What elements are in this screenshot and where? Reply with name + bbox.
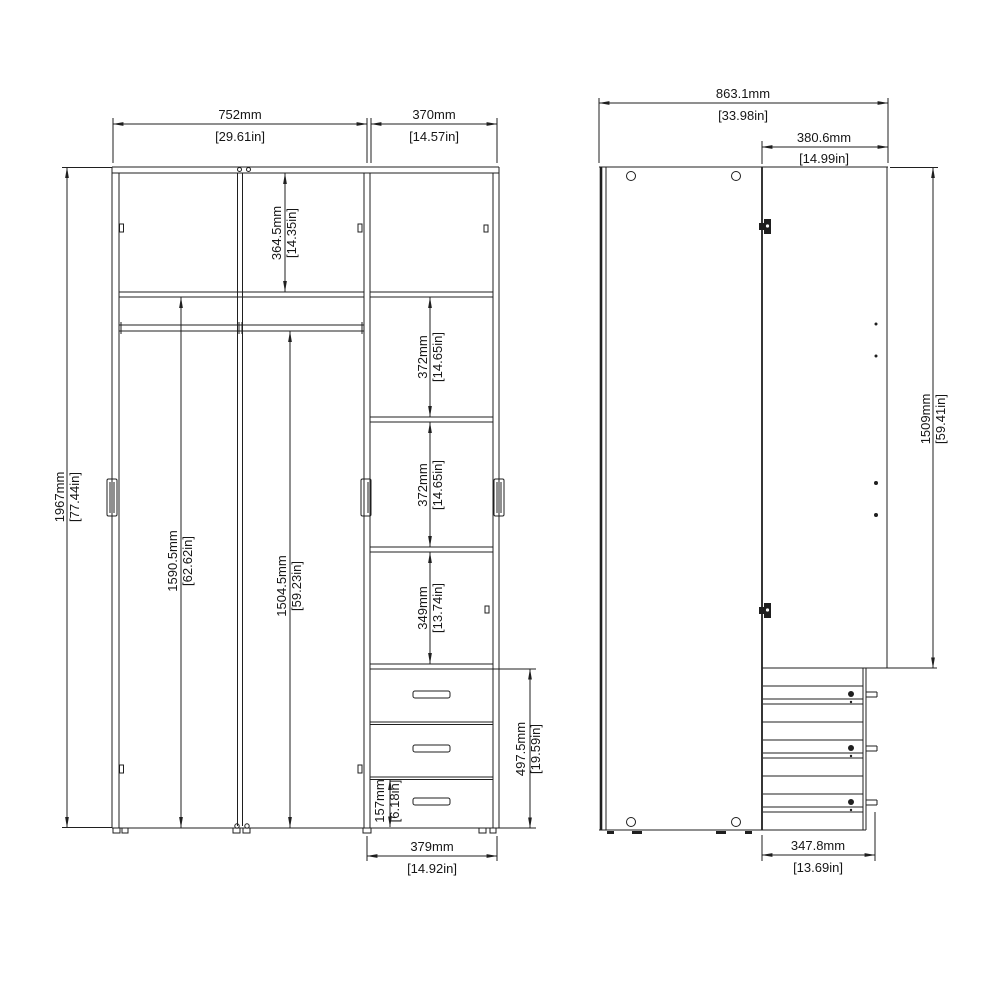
dim-front-width-doors-in: [29.61in] [215, 129, 265, 144]
dim-depth-total-in: [33.98in] [718, 108, 768, 123]
dim-drawer-depth-mm: 347.8mm [791, 838, 845, 853]
dim-shelf2-in: [14.65in] [430, 460, 445, 510]
drawer-handle-2 [413, 745, 450, 752]
screw-hole [732, 818, 741, 827]
hinge-icon [759, 219, 771, 234]
screw-hole [627, 172, 636, 181]
side-drawer-section [762, 668, 937, 830]
dim-drawer-stack-mm: 497.5mm [513, 722, 528, 776]
cam-mark [238, 168, 242, 172]
drawer-side-profile [763, 794, 877, 812]
dim-drawer-depth-in: [13.69in] [793, 860, 843, 875]
dim-side-height-in: [59.41in] [933, 394, 948, 444]
dim-shelf3-mm: 349mm [415, 586, 430, 629]
dim-shelf3-in: [13.74in] [430, 583, 445, 633]
dim-mid-hang-mm: 1504.5mm [274, 555, 289, 616]
dim-shelf1-mm: 372mm [415, 335, 430, 378]
dim-depth-total-mm: 863.1mm [716, 86, 770, 101]
drawer-side-profile [763, 686, 877, 704]
side-view: 863.1mm [33.98in] 380.6mm [14.99in] 1509… [599, 86, 948, 875]
dim-top-section-in: [14.35in] [284, 208, 299, 258]
front-view: 752mm [29.61in] 370mm [14.57in] 1967mm [… [52, 107, 543, 876]
dim-bottom-drawer-in: [6.18in] [387, 780, 402, 823]
front-dimension-labels: 752mm [29.61in] 370mm [14.57in] 1967mm [… [52, 107, 543, 876]
drawer-side-profile [763, 740, 877, 758]
dim-depth-cabinet-mm: 380.6mm [797, 130, 851, 145]
front-drawer-handles [413, 691, 450, 805]
dim-shelf2-mm: 372mm [415, 463, 430, 506]
dim-drawer-width-mm: 379mm [410, 839, 453, 854]
drawer-handle-3 [413, 798, 450, 805]
side-outline [599, 167, 888, 833]
dim-bottom-drawer-mm: 157mm [372, 779, 387, 822]
dim-depth-cabinet-in: [14.99in] [799, 151, 849, 166]
side-hinges [759, 219, 771, 618]
dim-side-height-mm: 1509mm [918, 394, 933, 445]
dim-left-hang-mm: 1590.5mm [165, 530, 180, 591]
dim-front-height-in: [77.44in] [67, 472, 82, 522]
screw-hole [732, 172, 741, 181]
cam-mark [247, 168, 251, 172]
dim-mid-hang-in: [59.23in] [289, 561, 304, 611]
drawing-svg: 752mm [29.61in] 370mm [14.57in] 1967mm [… [0, 0, 1000, 1000]
dim-front-width-column-in: [14.57in] [409, 129, 459, 144]
dim-top-section-mm: 364.5mm [269, 206, 284, 260]
dim-drawer-stack-in: [19.59in] [528, 724, 543, 774]
drawer-handle-1 [413, 691, 450, 698]
wardrobe-technical-drawing: 752mm [29.61in] 370mm [14.57in] 1967mm [… [0, 0, 1000, 1000]
dim-shelf1-in: [14.65in] [430, 332, 445, 382]
dim-front-width-column-mm: 370mm [412, 107, 455, 122]
dim-drawer-width-in: [14.92in] [407, 861, 457, 876]
screw-hole [627, 818, 636, 827]
hinge-icon [759, 603, 771, 618]
dim-front-width-doors-mm: 752mm [218, 107, 261, 122]
front-dimension-lines [62, 118, 536, 861]
side-dimension-labels: 863.1mm [33.98in] 380.6mm [14.99in] 1509… [716, 86, 948, 875]
dim-front-height-mm: 1967mm [52, 472, 67, 523]
dim-left-hang-in: [62.62in] [180, 536, 195, 586]
